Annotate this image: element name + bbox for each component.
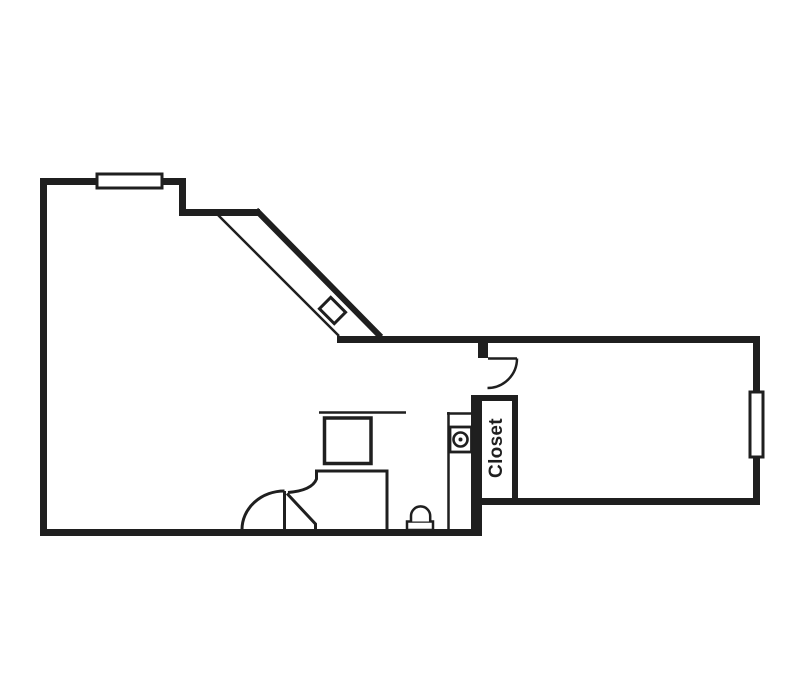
- toilet-bowl-icon: [411, 506, 430, 521]
- right-section-bottom-wall: [482, 498, 760, 505]
- right-window-icon: [750, 392, 763, 457]
- closet-side-wall: [512, 395, 518, 505]
- top-window-icon: [97, 174, 162, 188]
- bathroom-partition-wall: [471, 395, 482, 536]
- walls: [40, 178, 760, 536]
- right-section-top-wall: [337, 336, 760, 343]
- toilet-tank-icon: [407, 522, 433, 531]
- sink-drain-dot-icon: [459, 438, 463, 442]
- closet-label: Closet: [486, 388, 508, 508]
- shower-stall-icon: [325, 418, 372, 464]
- left-wall: [40, 178, 47, 536]
- door-jamb: [478, 337, 488, 358]
- door-swing-arc: [488, 359, 518, 389]
- floor-plan: Closet: [0, 0, 800, 675]
- shower-door-arc: [242, 491, 285, 530]
- shower-fold-panel: [287, 494, 316, 531]
- floor-plan-drawing: [0, 0, 800, 675]
- enclosure-left-curve: [288, 470, 317, 493]
